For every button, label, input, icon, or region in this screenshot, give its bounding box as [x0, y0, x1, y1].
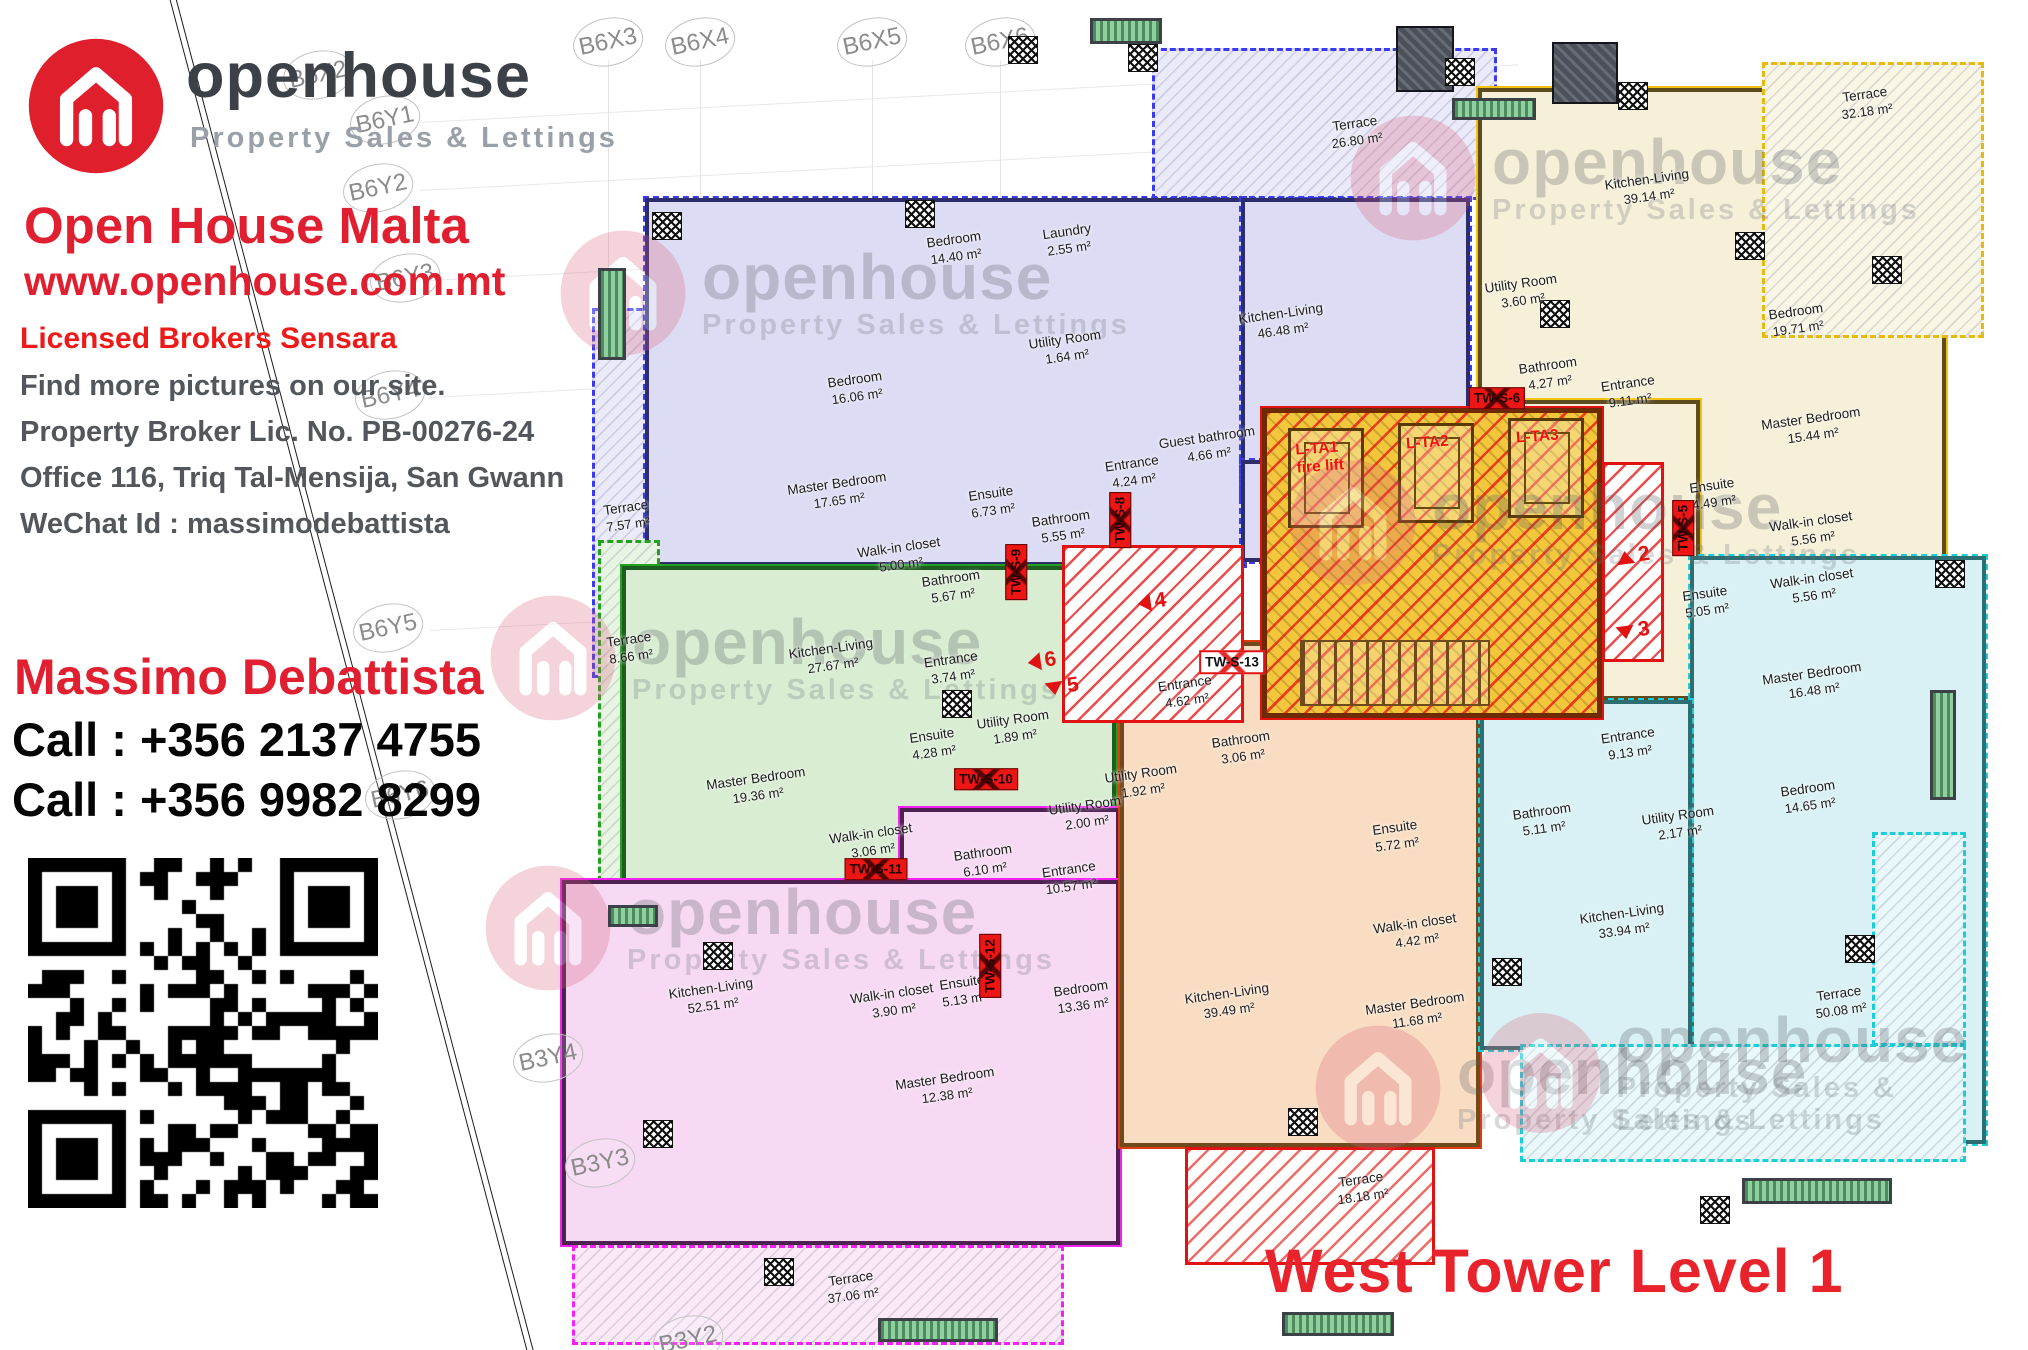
stair-arrow-down-icon: [1615, 624, 1635, 639]
structural-column: [1700, 1196, 1730, 1224]
room-label-bathroom: Bathroom5.67 m²: [921, 566, 984, 608]
room-label-terrace: Terrace8.66 m²: [605, 628, 654, 668]
stair-number-4: 4: [1136, 588, 1168, 616]
planter-box: [598, 268, 626, 360]
room-label-bathroom: Bathroom5.55 m²: [1031, 506, 1094, 548]
phone-number-2[interactable]: Call : +356 9982 8299: [12, 772, 481, 827]
room-label-bedroom: Bedroom13.36 m²: [1052, 976, 1111, 1018]
watermark-tagline: Property Sales & Lettings: [1492, 194, 1920, 227]
structural-column: [1872, 256, 1902, 284]
room-label-utility-room: Utility Room1.64 m²: [1028, 326, 1105, 370]
room-label-terrace: Terrace32.18 m²: [1838, 82, 1894, 123]
qr-code[interactable]: [28, 858, 378, 1208]
room-label-terrace: Terrace50.08 m²: [1812, 981, 1868, 1022]
structural-column: [1492, 958, 1522, 986]
room-label-ensuite: Ensuite5.72 m²: [1371, 816, 1420, 856]
structural-column: [942, 690, 972, 718]
broker-license-line: Property Broker Lic. No. PB-00276-24: [20, 416, 534, 449]
structural-column: [1008, 36, 1038, 64]
room-label-terrace: Terrace37.06 m²: [824, 1266, 880, 1307]
room-label-master-bedroom: Master Bedroom11.68 m²: [1364, 988, 1468, 1036]
room-label-ensuite: Ensuite5.05 m²: [1681, 582, 1730, 622]
floor-plan-canvas: openhouseProperty Sales & Lettingsopenho…: [0, 0, 2028, 1350]
watermark-tagline: Property Sales & Lettings: [1617, 1072, 2028, 1138]
stair-number-2: 2: [1615, 542, 1652, 570]
unit-tag-tw-s-11: TW-S-11: [845, 858, 908, 880]
room-label-bedroom: Bedroom14.65 m²: [1779, 776, 1838, 818]
room-label-kitchen-living: Kitchen-Living27.67 m²: [788, 634, 877, 680]
room-label-master-bedroom: Master Bedroom16.48 m²: [1761, 658, 1865, 706]
stair-arrow-left-icon: [1027, 652, 1042, 672]
plan-title: West Tower Level 1: [1265, 1236, 1844, 1306]
grid-label-b6x3: B6X3: [568, 11, 647, 73]
watermark-wordmark: openhouse: [1492, 130, 1920, 194]
watermark-tagline: Property Sales & Lettings: [1457, 1104, 1885, 1137]
room-label-terrace: Terrace26.80 m²: [1328, 111, 1384, 152]
office-address-line: Office 116, Triq Tal-Mensija, San Gwann: [20, 462, 564, 495]
room-label-entrance: Entrance10.57 m²: [1041, 857, 1099, 899]
unit-tag-tw-s-9: TW-S-9: [1005, 544, 1027, 600]
watermark-house-icon: [1313, 1023, 1443, 1153]
room-label-terrace: Terrace7.57 m²: [602, 496, 651, 536]
room-label-entrance: Entrance9.13 m²: [1600, 723, 1658, 765]
grid-label-b3y4: B3Y4: [508, 1027, 587, 1089]
watermark-wordmark: openhouse: [1457, 1040, 1885, 1104]
structural-column: [703, 942, 733, 970]
planter-box: [1282, 1312, 1394, 1336]
openhouse-watermark: openhouseProperty Sales & Lettings: [1313, 1023, 1885, 1153]
room-label-kitchen-living: Kitchen-Living52.51 m²: [668, 974, 757, 1020]
room-label-master-bedroom: Master Bedroom19.36 m²: [705, 763, 809, 811]
planter-box: [1090, 18, 1162, 44]
openhouse-wordmark: openhouse: [186, 40, 531, 112]
stair-arrow-down-icon: [1044, 680, 1064, 695]
room-label-ensuite: Ensuite4.49 m²: [1688, 474, 1737, 514]
watermark-house-icon: [483, 863, 613, 993]
structural-column: [643, 1120, 673, 1148]
structural-column: [905, 200, 935, 228]
structural-column: [1288, 1108, 1318, 1136]
room-label-kitchen-living: Kitchen-Living46.48 m²: [1238, 299, 1327, 345]
openhouse-tagline: Property Sales & Lettings: [190, 122, 618, 155]
stair-number-5: 5: [1044, 673, 1081, 701]
structural-column: [1845, 935, 1875, 963]
unit-tag-tw-s-6: TW-S-6: [1469, 387, 1525, 409]
room-label-walk-in-closet: Walk-in closet4.42 m²: [1372, 909, 1460, 955]
watermark-tagline: Property Sales & Lettings: [632, 674, 1060, 707]
structural-column: [1735, 232, 1765, 260]
room-label-bathroom: Bathroom4.27 m²: [1518, 353, 1581, 395]
lift-label-l-ta2: L-TA2: [1405, 433, 1449, 454]
unit-tag-tw-s-10: TW-S-10: [954, 768, 1018, 790]
watermark-house-icon: [488, 593, 618, 723]
room-label-kitchen-living: Kitchen-Living39.14 m²: [1604, 165, 1693, 211]
structural-column: [1128, 44, 1158, 72]
unit-tag-tw-s-13: TW-S-13: [1199, 650, 1265, 674]
room-label-utility-room: Utility Room1.89 m²: [976, 706, 1053, 750]
watermark-house-icon: [1478, 1008, 1603, 1138]
unit-tag-tw-s-5: TW-S-5: [1672, 500, 1694, 556]
room-label-bathroom: Bathroom5.11 m²: [1512, 799, 1575, 841]
room-label-ensuite: Ensuite6.73 m²: [967, 482, 1016, 522]
planter-box: [1930, 690, 1956, 800]
room-label-bedroom: Bedroom19.71 m²: [1767, 299, 1826, 341]
stair-arrow-up-icon: [1615, 549, 1635, 564]
room-label-walk-in-closet: Walk-in closet5.56 m²: [1769, 564, 1857, 610]
room-label-laundry: Laundry2.55 m²: [1041, 220, 1094, 261]
planter-box: [878, 1318, 998, 1342]
stair-number-3: 3: [1615, 617, 1652, 645]
wechat-line: WeChat Id : massimodebattista: [20, 508, 450, 541]
watermark-house-icon: [1288, 458, 1418, 588]
room-label-bedroom: Bedroom14.40 m²: [925, 227, 984, 269]
agency-title: Open House Malta: [24, 196, 469, 255]
room-label-terrace: Terrace18.18 m²: [1334, 1167, 1390, 1208]
room-label-kitchen-living: Kitchen-Living39.49 m²: [1184, 979, 1273, 1025]
grid-label-b3y2: B3Y2: [648, 1309, 727, 1350]
room-label-utility-room: Utility Room2.17 m²: [1641, 802, 1718, 846]
note-line: Find more pictures on our site.: [20, 370, 445, 403]
room-label-walk-in-closet: Walk-in closet5.56 m²: [1768, 507, 1856, 553]
room-label-bedroom: Bedroom16.06 m²: [826, 367, 885, 409]
agency-website-link[interactable]: www.openhouse.com.mt: [24, 258, 505, 305]
stair-arrow-left-icon: [1137, 593, 1152, 613]
room-label-utility-room: Utility Room1.92 m²: [1104, 760, 1181, 804]
room-label-bathroom: Bathroom3.06 m²: [1211, 727, 1274, 769]
grid-label-b6x4: B6X4: [660, 11, 739, 73]
openhouse-watermark: openhouseProperty Sales & Lettings: [1478, 1008, 2028, 1138]
room-label-master-bedroom: Master Bedroom15.44 m²: [1760, 403, 1864, 451]
lift-label-l-ta1: L-TA1fire lift: [1295, 438, 1345, 477]
room-label-kitchen-living: Kitchen-Living33.94 m²: [1579, 899, 1668, 945]
lift-label-l-ta3: L-TA3: [1515, 427, 1559, 448]
structural-column: [764, 1258, 794, 1286]
room-label-entrance: Entrance4.24 m²: [1104, 451, 1162, 493]
grid-label-b6x5: B6X5: [832, 11, 911, 73]
phone-number-1[interactable]: Call : +356 2137 4755: [12, 712, 481, 767]
unit-tag-tw-s-12: TW-S-12: [979, 934, 1001, 998]
room-label-ensuite: Ensuite4.28 m²: [908, 724, 957, 764]
planter-box: [608, 905, 658, 927]
room-label-entrance: Entrance3.74 m²: [923, 647, 981, 689]
unit-tag-tw-s-8: TW-S-8: [1109, 492, 1131, 548]
room-label-master-bedroom: Master Bedroom17.65 m²: [786, 468, 890, 516]
openhouse-logo-icon: [26, 36, 166, 176]
room-label-master-bedroom: Master Bedroom12.38 m²: [894, 1063, 998, 1111]
planter-box: [1742, 1178, 1892, 1204]
planter-box: [1452, 98, 1536, 120]
stair-number-6: 6: [1026, 647, 1058, 675]
room-label-guest-bathroom: Guest bathroom4.66 m²: [1158, 422, 1259, 470]
structural-column: [1445, 58, 1475, 86]
structural-column: [1618, 82, 1648, 110]
grid-label-b3y3: B3Y3: [560, 1132, 639, 1194]
room-label-entrance: Entrance4.62 m²: [1157, 671, 1215, 713]
license-line: Licensed Brokers Sensara: [20, 322, 397, 356]
room-label-entrance: Entrance9.11 m²: [1600, 371, 1658, 413]
room-label-bathroom: Bathroom6.10 m²: [953, 840, 1016, 882]
structural-column: [652, 212, 682, 240]
agent-name: Massimo Debattista: [14, 648, 484, 706]
structural-column: [1935, 560, 1965, 588]
room-label-walk-in-closet: Walk-in closet3.90 m²: [849, 979, 937, 1025]
